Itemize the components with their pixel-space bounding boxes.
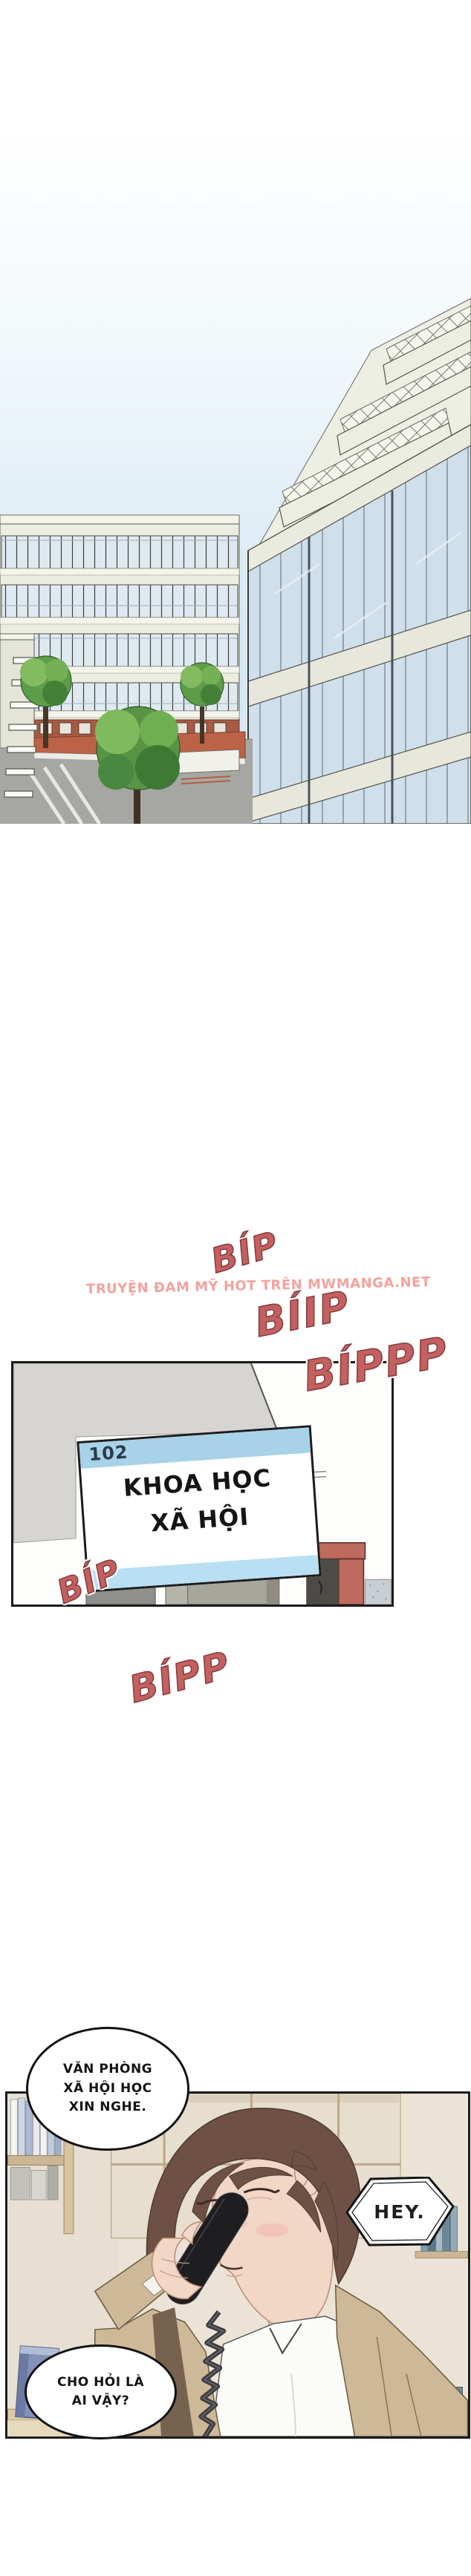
- sign-room-number: 102: [79, 1441, 129, 1466]
- bubble-line: AI VẬY?: [72, 2392, 129, 2411]
- bubble-line: XIN NGHE.: [69, 2098, 147, 2117]
- site-watermark: TRUYỆN ĐAM MỸ HOT TRÊN MWMANGA.NET: [86, 1274, 431, 1297]
- floor-block: [365, 1579, 391, 1605]
- speech-bubble-who: CHO HỎI LÀ AI VẬY?: [25, 2344, 177, 2439]
- bubble-line: XÃ HỘI HỌC: [63, 2080, 152, 2099]
- sfx-beep-1: BÍP: [207, 1224, 283, 1281]
- bubble-line: CHO HỎI LÀ: [57, 2373, 144, 2393]
- comic-page: BÍP TRUYỆN ĐAM MỸ HOT TRÊN MWMANGA.NET B…: [0, 0, 471, 2576]
- speech-bubble-office: VĂN PHÒNG XÃ HỘI HỌC XIN NGHE.: [26, 2027, 189, 2151]
- panel-campus-exterior: [0, 126, 471, 824]
- sign-title: KHOA HỌC XÃ HỘI: [81, 1457, 316, 1547]
- blush-right: [256, 2223, 288, 2237]
- bubble-line: VĂN PHÒNG: [63, 2060, 152, 2080]
- sfx-beep-5: BÍPP: [125, 1643, 235, 1711]
- speech-bubble-hey: HEY.: [345, 2177, 455, 2246]
- bubble-hey-text: HEY.: [374, 2201, 425, 2223]
- shelf-items: [10, 2166, 58, 2200]
